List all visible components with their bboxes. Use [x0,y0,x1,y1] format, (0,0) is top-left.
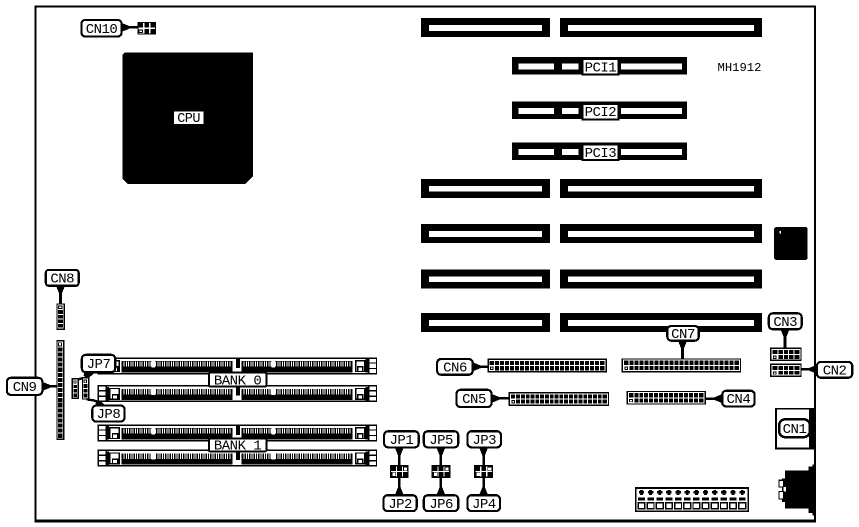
svg-text:PCI1: PCI1 [585,60,617,76]
svg-text:JP8: JP8 [97,407,121,423]
svg-text:JP6: JP6 [429,497,453,513]
svg-text:CN4: CN4 [727,392,751,408]
svg-text:CN7: CN7 [671,327,695,343]
svg-text:CN10: CN10 [86,22,118,38]
svg-text:CN8: CN8 [50,271,74,287]
svg-text:JP7: JP7 [87,357,111,373]
svg-text:CN1: CN1 [783,422,807,438]
svg-text:CN3: CN3 [773,315,797,331]
svg-text:CN2: CN2 [823,363,847,379]
svg-text:JP4: JP4 [472,497,496,513]
svg-text:JP3: JP3 [472,433,496,449]
svg-text:MH1912: MH1912 [718,61,762,75]
svg-text:BANK 1: BANK 1 [214,439,262,455]
svg-text:CN9: CN9 [13,380,37,396]
svg-text:PCI2: PCI2 [585,105,617,121]
svg-text:PCI3: PCI3 [585,146,617,162]
svg-text:BANK 0: BANK 0 [214,373,262,389]
svg-text:JP5: JP5 [429,433,453,449]
svg-text:CN6: CN6 [443,361,467,377]
svg-text:CPU: CPU [177,112,200,127]
svg-text:JP2: JP2 [388,497,412,513]
svg-text:JP1: JP1 [390,433,414,449]
svg-text:CN5: CN5 [462,392,486,408]
